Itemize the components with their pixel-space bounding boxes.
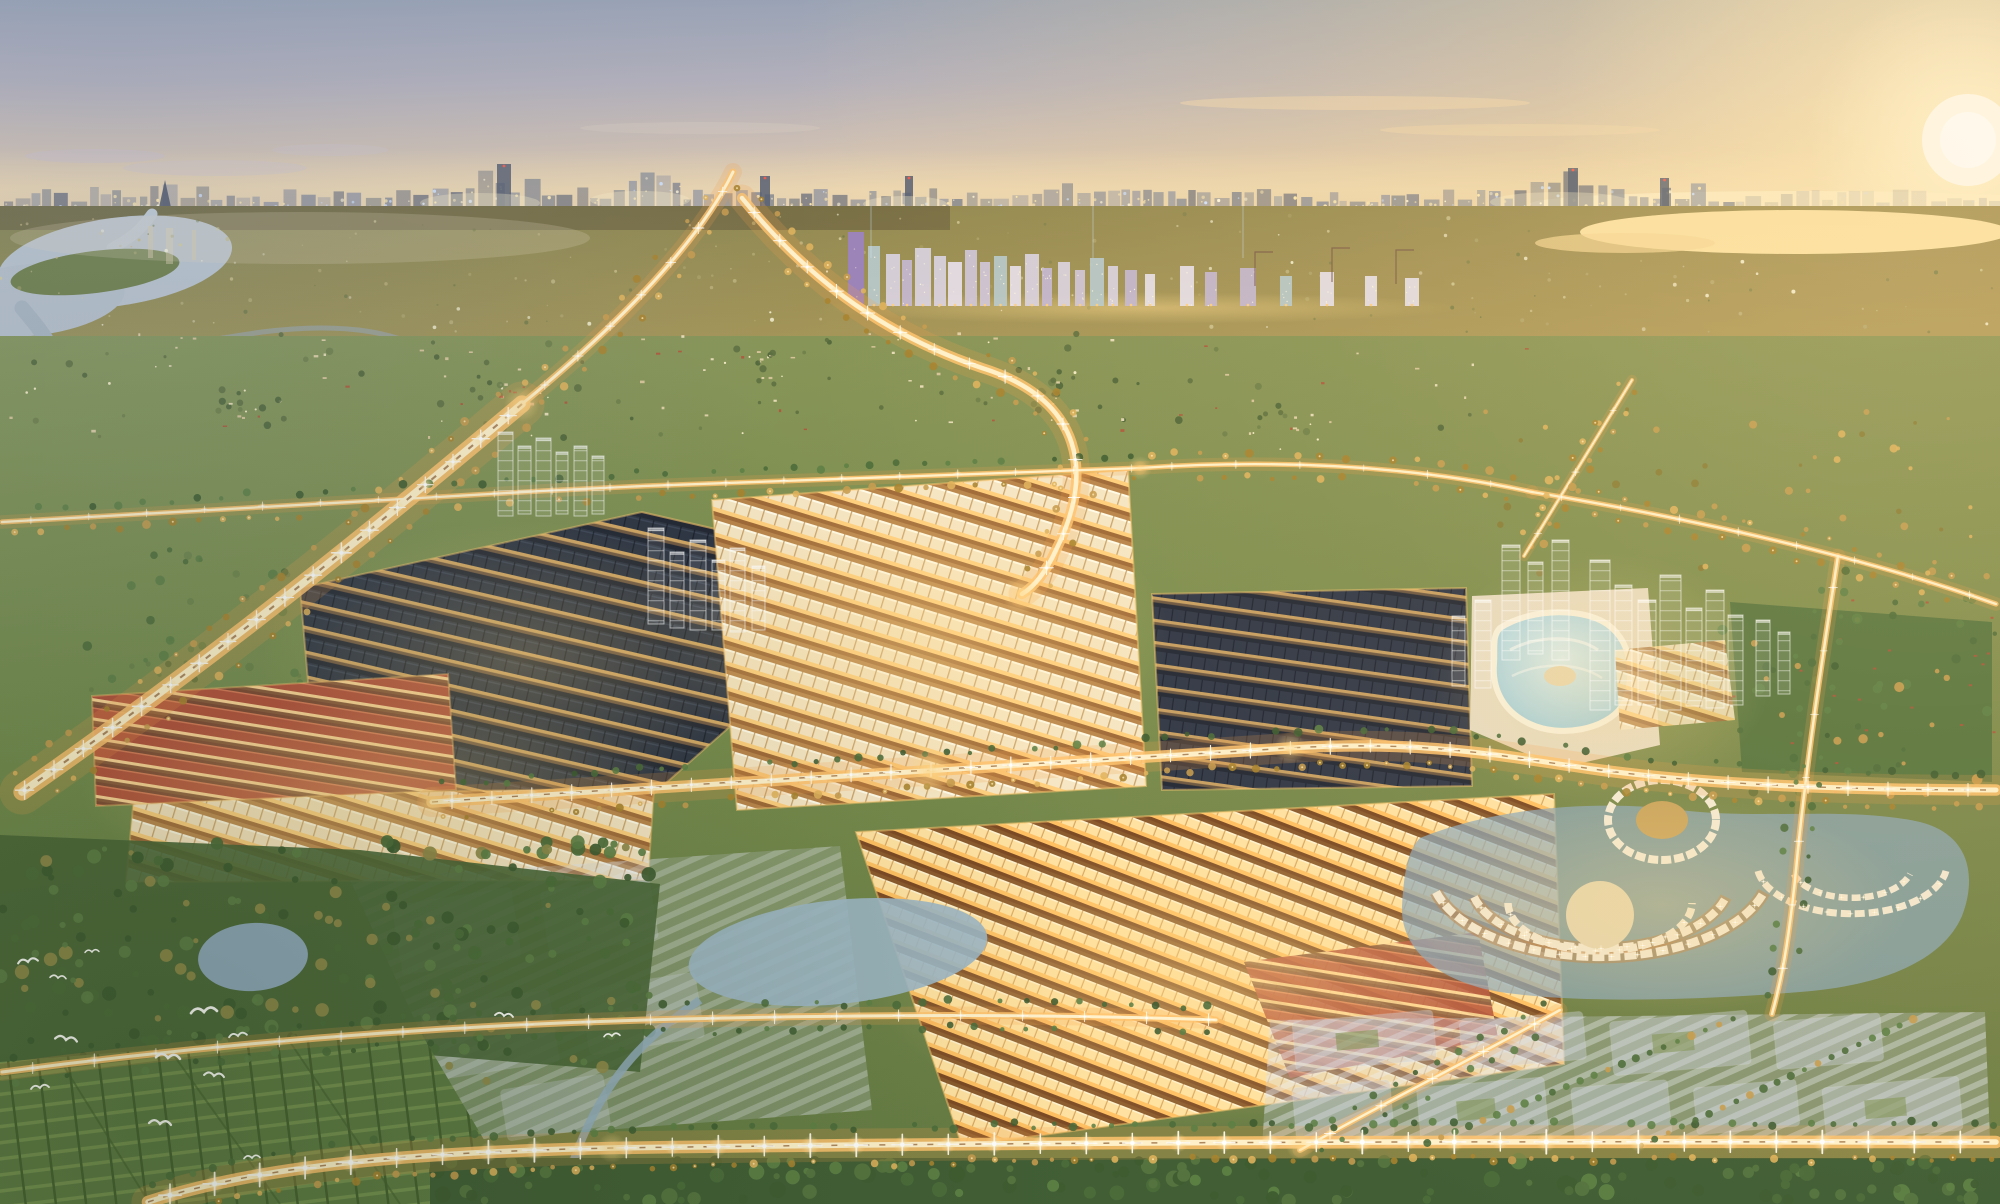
aerial-render — [0, 0, 2000, 1204]
atmosphere-overlays — [0, 0, 2000, 1204]
scene-root — [0, 0, 2000, 1204]
cool-corner-wash — [0, 0, 2000, 1204]
